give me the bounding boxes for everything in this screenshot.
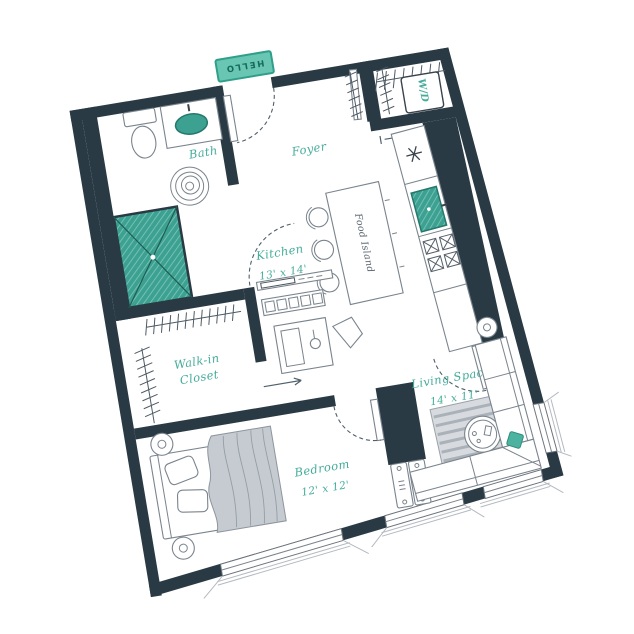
bedroom-dims: 12' x 12' xyxy=(300,479,350,499)
floor-plan: HELLO xyxy=(58,5,586,616)
floor-plan-svg: HELLO xyxy=(58,5,586,616)
bath-faucet-icon xyxy=(188,104,189,111)
closet-entry-arrow-icon xyxy=(263,377,302,390)
nightstand-icon xyxy=(171,535,196,560)
bedroom-label: Bedroom xyxy=(292,457,350,480)
wall-bedroom-living xyxy=(376,382,426,465)
floor-plan-canvas: HELLO xyxy=(0,0,634,634)
pillow-icon xyxy=(177,490,208,513)
shower xyxy=(114,207,192,308)
wall-left xyxy=(70,109,162,597)
bath-label: Bath xyxy=(187,143,219,162)
foyer-label: Foyer xyxy=(290,139,329,159)
kitchen-label: Kitchen xyxy=(254,241,304,263)
bath-round-rug xyxy=(168,164,212,208)
wall-closet-right xyxy=(243,287,266,363)
stool-icon xyxy=(313,239,335,261)
desk-chair xyxy=(332,316,365,350)
closet-hangers-left-icon xyxy=(134,347,162,425)
living-label: Living Space xyxy=(409,364,491,391)
bedroom-window-glass xyxy=(219,535,345,571)
toilet-bowl-icon xyxy=(129,124,158,160)
stool-icon xyxy=(308,206,330,228)
